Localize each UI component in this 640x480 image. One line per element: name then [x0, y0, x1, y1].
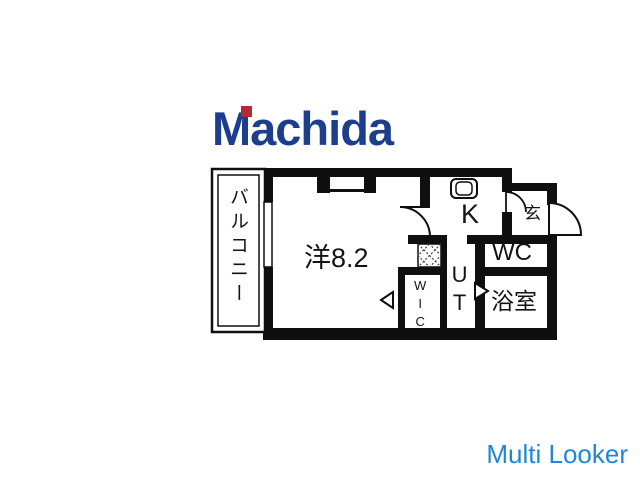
wall-kitchen-entrance-lower [502, 212, 512, 235]
balcony-window [264, 202, 272, 267]
wic-door-marker-icon [381, 292, 393, 308]
room-label-main-room: 洋8.2 [304, 244, 369, 272]
window-sill-line [330, 189, 364, 192]
wall-wic-left [398, 267, 405, 340]
door-arc-entrance-inner [506, 192, 526, 212]
room-label-entrance: 玄 [524, 205, 541, 223]
wall-bottom [265, 328, 557, 340]
door-arc-front-door [549, 203, 581, 235]
wall-top [265, 168, 512, 177]
floorplan-drawing [0, 0, 640, 480]
watermark-text: Multi Looker [486, 439, 628, 470]
room-label-balcony: バルコニー [227, 187, 247, 307]
hatched-pad-icon [418, 244, 441, 267]
room-label-closet: WIC [413, 278, 427, 332]
wall-window-stub-right [364, 177, 376, 193]
door-arc-kitchen [400, 207, 430, 237]
wall-main-kitchen [420, 177, 430, 207]
wall-wic-top [398, 267, 447, 275]
room-label-bathroom: 浴室 [491, 289, 537, 313]
wall-wc-bath [475, 267, 557, 276]
listing-image: Machida [0, 0, 640, 480]
wall-band-left [408, 235, 447, 244]
room-label-toilet: WC [492, 240, 532, 265]
room-label-kitchen: K [461, 200, 479, 228]
wall-kitchen-entrance-upper [502, 177, 512, 192]
room-label-utility: UT [448, 262, 471, 318]
wall-right-lower [547, 235, 557, 340]
wall-entrance-top [512, 183, 557, 191]
wall-window-stub-left [317, 177, 330, 193]
